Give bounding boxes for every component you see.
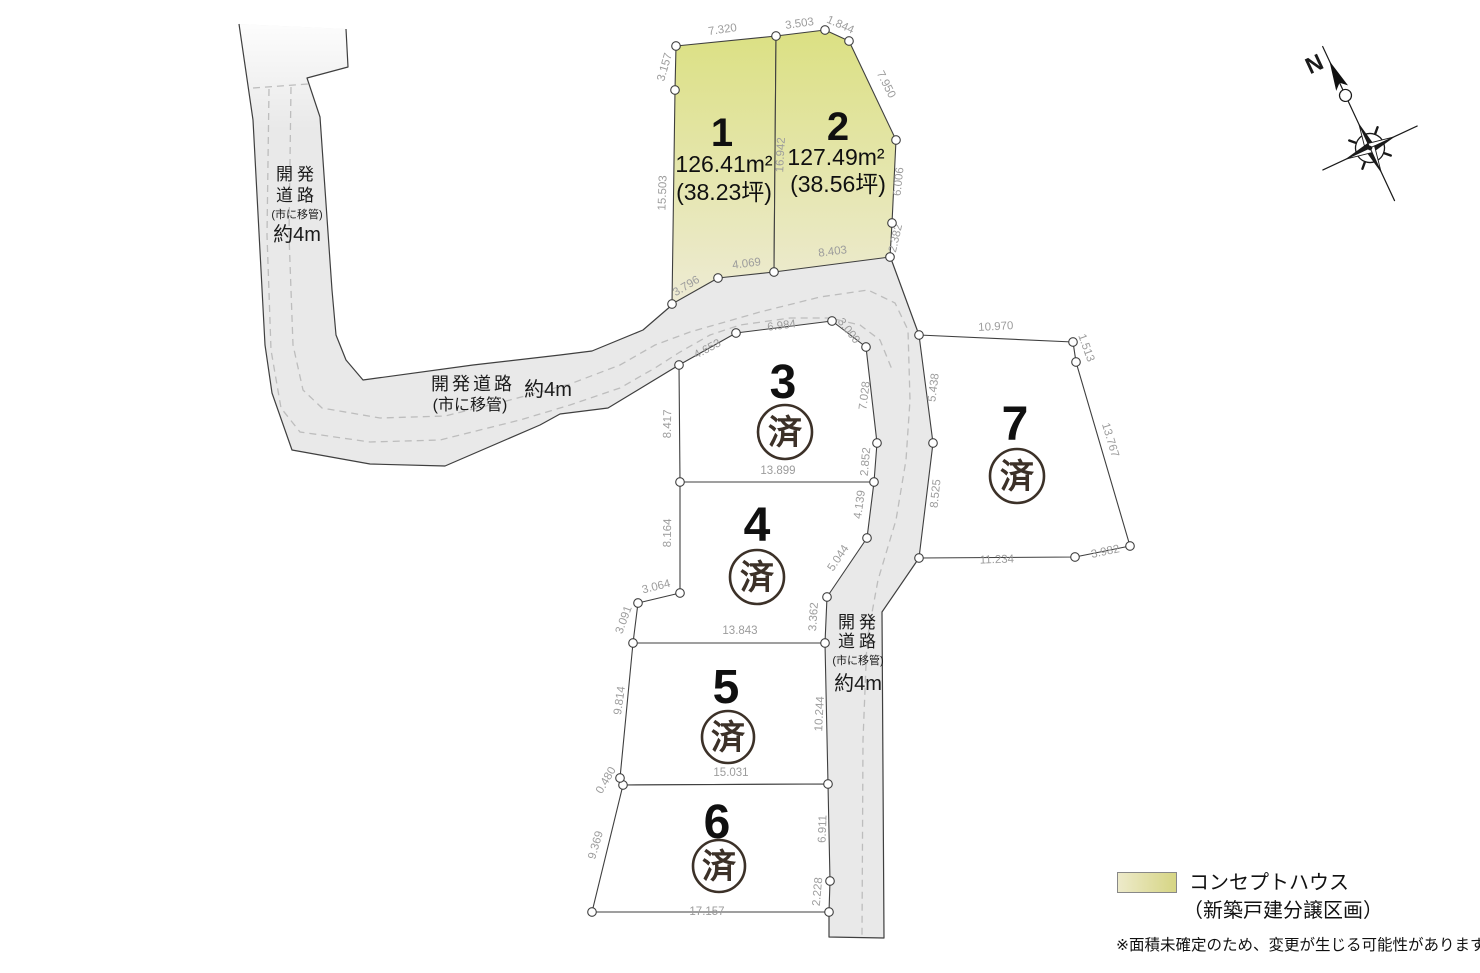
dimension-label: 16.942 [774,137,788,173]
dimension-label: 9.814 [612,685,628,716]
survey-point-marker [770,268,779,277]
site-plan-map: 7.3203.5031.8443.15715.50316.9427.9506.0… [0,0,1480,968]
dimension-label: 3.157 [655,52,674,83]
compass-north-label: N [1301,48,1327,79]
area-note: ※面積未確定のため、変更が生じる可能性があります。 [1116,933,1480,955]
lot-area-tsubo: (38.56坪) [790,171,886,197]
lot-number: 2 [827,105,849,149]
dimension-label: 10.244 [813,695,827,731]
road-label: (市に移管) [271,207,322,221]
dimension-label: 13.899 [760,465,795,477]
survey-point-marker [675,361,684,370]
road-border [307,29,672,380]
survey-point-marker [823,593,832,602]
dimension-label: 8.417 [662,409,675,438]
dimension-label: 17.157 [689,906,724,918]
dimension-label: 3.362 [807,602,821,632]
dimension-label: 9.369 [586,830,605,861]
dimension-label: 15.503 [656,175,669,211]
dimension-label: 10.970 [978,320,1014,334]
survey-point-marker [821,26,830,35]
survey-point-marker [1126,542,1135,551]
lot-number: 5 [713,661,740,714]
survey-point-marker [826,877,835,886]
dimension-label: 3.503 [784,16,814,32]
survey-point-marker [821,639,830,648]
dimension-label: 15.031 [713,767,748,779]
lot-area-m2: 126.41m² [675,151,773,177]
dimension-label: 3.091 [614,604,635,635]
sold-stamp-text: 済 [711,719,746,757]
survey-point-marker [1071,553,1080,562]
sold-stamp-text: 済 [740,559,775,597]
dimension-label: 3.064 [641,578,672,597]
lot-area-m2: 127.49m² [787,144,885,170]
dimension-label: 6.911 [817,815,830,843]
survey-point-marker [676,478,685,487]
dimension-label: 2.852 [859,447,873,477]
survey-point-marker [671,86,680,95]
survey-point-marker [828,317,837,326]
sold-stamp-text: 済 [702,848,737,886]
sold-stamp-text: 済 [1000,458,1035,496]
survey-point-marker [588,908,597,917]
legend-swatch-concept-house [1117,872,1177,893]
survey-point-marker [1072,358,1081,367]
dimension-label: 13.843 [722,625,757,637]
dimension-label: 2.228 [811,877,825,907]
sold-stamp-text: 済 [768,414,803,452]
road-label: 約4m [273,223,321,246]
road-label: 約4m [524,378,572,401]
lot-number: 1 [711,111,733,155]
road-label: 道路 [276,186,318,205]
road-label: 開発 [276,165,318,184]
dimension-label: 6.006 [892,167,907,197]
road-label: 開発道路 [431,374,515,394]
survey-point-marker [732,329,741,338]
survey-point-marker [870,478,879,487]
dimension-label: 0.480 [594,765,619,796]
survey-point-marker [862,343,871,352]
survey-point-marker [616,774,625,783]
road-label: (市に移管) [832,653,883,667]
survey-point-marker [892,136,901,145]
compass-rose-icon: N [1275,24,1442,223]
survey-point-marker [888,219,897,228]
road-top-fade [230,22,360,132]
survey-point-marker [886,253,895,262]
road-label: 約4m [834,672,882,695]
survey-point-marker [668,300,677,309]
survey-point-marker [929,439,938,448]
north-arrow-icon [1324,58,1348,91]
lot-number: 3 [770,356,797,409]
lot-number: 4 [744,499,771,552]
survey-point-marker [873,439,882,448]
survey-point-marker [915,331,924,340]
legend-sublabel: （新築戸建分譲区画） [1183,894,1383,923]
survey-point-marker [672,42,681,51]
survey-point-marker [1069,338,1078,347]
survey-point-marker [824,780,833,789]
survey-point-marker [915,554,924,563]
survey-point-marker [772,32,781,41]
survey-point-marker [629,639,638,648]
survey-point-marker [845,37,854,46]
dimension-label: 8.164 [662,518,675,548]
survey-point-marker [714,274,723,283]
survey-point-marker [634,599,643,608]
road-label: 開発 [838,613,880,632]
dimension-label: 7.950 [874,69,898,100]
survey-point-marker [676,589,685,598]
lot-area-tsubo: (38.23坪) [676,179,772,205]
survey-point-marker [863,534,872,543]
legend-label: コンセプトハウス [1189,866,1349,895]
lot-number: 7 [1002,398,1029,451]
road-label: (市に移管) [433,396,508,414]
dimension-label: 11.234 [980,553,1015,566]
road-label: 道路 [838,632,880,651]
dimension-label: 7.320 [707,22,737,38]
survey-point-marker [825,908,834,917]
